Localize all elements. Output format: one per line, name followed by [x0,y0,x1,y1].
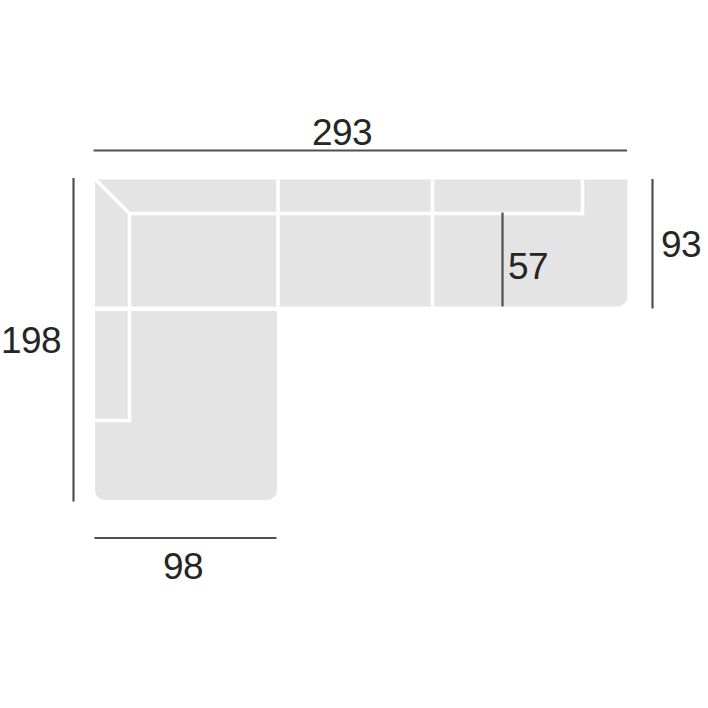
sofa-top-view-svg: 293 198 93 57 98 [0,0,708,708]
sofa-chaise-section [95,311,277,500]
sofa-body [95,180,628,501]
left-depth-label: 198 [1,320,61,361]
seat-depth-label: 57 [508,246,548,287]
right-depth-label: 93 [661,224,701,265]
sofa-dimension-diagram: 293 198 93 57 98 [0,0,708,708]
sofa-main-section [95,180,628,307]
total-width-label: 293 [312,112,372,153]
chaise-width-label: 98 [163,546,203,587]
